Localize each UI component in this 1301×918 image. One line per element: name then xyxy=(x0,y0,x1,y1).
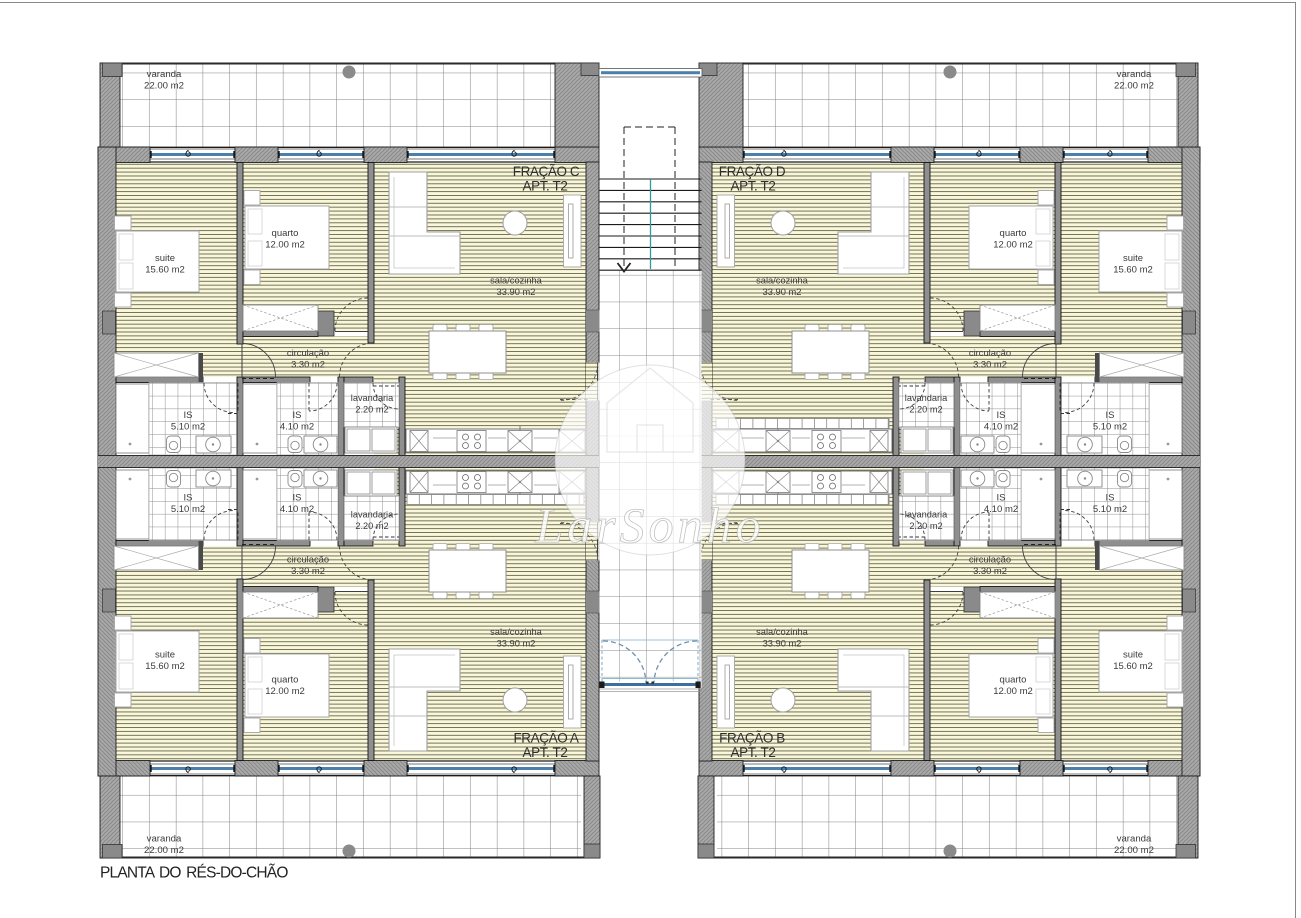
svg-text:22.00 m2: 22.00 m2 xyxy=(1114,81,1154,92)
svg-text:IS: IS xyxy=(184,492,193,503)
svg-text:sala/cozinha: sala/cozinha xyxy=(756,276,809,286)
svg-text:12.00 m2: 12.00 m2 xyxy=(993,686,1033,697)
svg-text:varanda: varanda xyxy=(147,69,182,80)
svg-text:4.10 m2: 4.10 m2 xyxy=(280,504,314,515)
svg-text:FRAÇÃO D: FRAÇÃO D xyxy=(719,164,786,179)
svg-text:15.60 m2: 15.60 m2 xyxy=(145,265,185,276)
svg-text:APT. T2: APT. T2 xyxy=(731,179,776,194)
svg-text:15.60 m2: 15.60 m2 xyxy=(1113,661,1153,672)
svg-text:suite: suite xyxy=(155,649,175,660)
svg-text:lavandaria: lavandaria xyxy=(351,509,394,519)
svg-text:circulação: circulação xyxy=(287,347,329,358)
svg-text:sala/cozinha: sala/cozinha xyxy=(490,276,543,286)
svg-text:suite: suite xyxy=(155,253,175,264)
svg-text:APT. T2: APT. T2 xyxy=(523,179,568,194)
svg-text:2.20 m2: 2.20 m2 xyxy=(909,521,942,531)
svg-text:sala/cozinha: sala/cozinha xyxy=(490,627,543,637)
svg-text:quarto: quarto xyxy=(272,228,299,239)
svg-text:12.00 m2: 12.00 m2 xyxy=(993,240,1033,251)
svg-text:33.90 m2: 33.90 m2 xyxy=(763,287,802,297)
svg-text:lavandaria: lavandaria xyxy=(351,393,394,403)
svg-text:IS: IS xyxy=(184,410,193,421)
svg-text:LarSonho: LarSonho xyxy=(534,497,764,553)
svg-text:2.20 m2: 2.20 m2 xyxy=(909,405,942,415)
svg-text:5.10 m2: 5.10 m2 xyxy=(1093,504,1127,515)
svg-text:varanda: varanda xyxy=(1117,69,1152,80)
svg-text:4.10 m2: 4.10 m2 xyxy=(984,504,1018,515)
svg-text:quarto: quarto xyxy=(1000,674,1027,685)
svg-text:quarto: quarto xyxy=(1000,228,1027,239)
svg-text:3.30 m2: 3.30 m2 xyxy=(291,565,325,576)
svg-text:5.10 m2: 5.10 m2 xyxy=(171,422,205,433)
svg-text:IS: IS xyxy=(997,410,1006,421)
svg-text:PLANTA DO RÉS-DO-CHÃO: PLANTA DO RÉS-DO-CHÃO xyxy=(100,865,288,882)
svg-text:varanda: varanda xyxy=(147,833,182,844)
svg-text:varanda: varanda xyxy=(1117,833,1152,844)
svg-text:IS: IS xyxy=(997,492,1006,503)
svg-text:IS: IS xyxy=(293,492,302,503)
svg-text:IS: IS xyxy=(1106,410,1115,421)
svg-text:suite: suite xyxy=(1123,649,1143,660)
svg-text:33.90 m2: 33.90 m2 xyxy=(497,287,536,297)
svg-text:22.00 m2: 22.00 m2 xyxy=(144,845,184,856)
svg-text:suite: suite xyxy=(1123,253,1143,264)
svg-text:4.10 m2: 4.10 m2 xyxy=(984,422,1018,433)
svg-text:FRAÇÃO B: FRAÇÃO B xyxy=(719,731,785,746)
svg-text:22.00 m2: 22.00 m2 xyxy=(144,81,184,92)
svg-text:15.60 m2: 15.60 m2 xyxy=(1113,265,1153,276)
svg-text:12.00 m2: 12.00 m2 xyxy=(265,240,305,251)
svg-text:3.30 m2: 3.30 m2 xyxy=(973,565,1007,576)
svg-text:3.30 m2: 3.30 m2 xyxy=(973,359,1007,370)
svg-text:12.00 m2: 12.00 m2 xyxy=(265,686,305,697)
svg-text:FRAÇÃO C: FRAÇÃO C xyxy=(513,164,580,179)
svg-text:2.20 m2: 2.20 m2 xyxy=(355,405,388,415)
svg-text:quarto: quarto xyxy=(272,674,299,685)
svg-text:22.00 m2: 22.00 m2 xyxy=(1114,845,1154,856)
svg-text:IS: IS xyxy=(293,410,302,421)
svg-text:5.10 m2: 5.10 m2 xyxy=(1093,422,1127,433)
svg-text:circulação: circulação xyxy=(969,347,1011,358)
svg-text:4.10 m2: 4.10 m2 xyxy=(280,422,314,433)
svg-text:lavandaria: lavandaria xyxy=(905,509,948,519)
svg-text:2.20 m2: 2.20 m2 xyxy=(355,521,388,531)
svg-text:sala/cozinha: sala/cozinha xyxy=(756,627,809,637)
svg-text:15.60 m2: 15.60 m2 xyxy=(145,661,185,672)
svg-text:3.30 m2: 3.30 m2 xyxy=(291,359,325,370)
svg-text:APT. T2: APT. T2 xyxy=(731,745,776,760)
svg-text:33.90 m2: 33.90 m2 xyxy=(763,639,802,649)
svg-text:lavandaria: lavandaria xyxy=(905,393,948,403)
svg-text:APT. T2: APT. T2 xyxy=(523,745,568,760)
svg-text:FRAÇÃO A: FRAÇÃO A xyxy=(513,731,578,746)
svg-text:circulação: circulação xyxy=(287,553,329,564)
svg-text:5.10 m2: 5.10 m2 xyxy=(171,504,205,515)
svg-text:33.90 m2: 33.90 m2 xyxy=(497,639,536,649)
svg-text:circulação: circulação xyxy=(969,553,1011,564)
svg-text:IS: IS xyxy=(1106,492,1115,503)
